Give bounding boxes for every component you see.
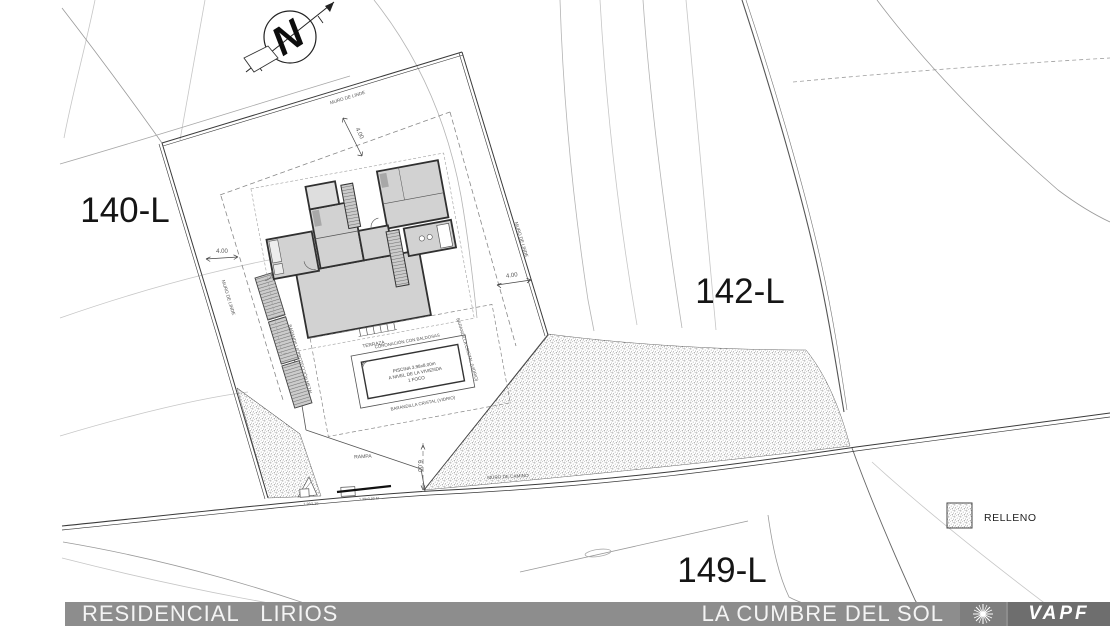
compass-flag: [244, 46, 278, 72]
road-dim-a: 1.26/1.39: [303, 502, 318, 507]
dim-right: 4.00: [506, 272, 519, 280]
parcel-label-149: 149-L: [677, 551, 767, 590]
project-name: RESIDENCIAL LIRIOS: [82, 602, 338, 626]
dim-ramp: 6.00: [416, 460, 422, 472]
dim-left: 4.00: [216, 249, 228, 255]
parcel-label-142: 142-L: [695, 272, 785, 311]
legend: RELLENO: [947, 503, 1037, 528]
relleno-band-right: [424, 334, 850, 490]
road-dim-b: 1.39x3.90 M: [359, 496, 379, 501]
location-name: LA CUMBRE DEL SOL: [702, 602, 944, 626]
site-plan-sheet: TERRAZA CORONACIÓN CON BALDOSAS PISCINA …: [0, 0, 1110, 626]
title-bar: RESIDENCIAL LIRIOS LA CUMBRE DEL SOL VAP…: [65, 602, 1110, 626]
room-bedroom-2: [377, 160, 449, 228]
muro-linde-top-label: MURO DE LINDE: [329, 90, 365, 105]
muro-linde-right-label: MURO DE LINDE: [514, 221, 529, 257]
parcel-label-140: 140-L: [80, 191, 170, 230]
rampa-label: RAMPA: [354, 454, 372, 461]
legend-relleno-label: RELLENO: [984, 512, 1037, 524]
sunburst-icon: [960, 602, 1006, 626]
legend-relleno-swatch: [947, 503, 972, 528]
vapf-logo: VAPF: [958, 602, 1110, 626]
room-bath-small: [305, 181, 339, 209]
muro-linde-left-label: MURO DE LINDE: [221, 279, 236, 315]
site-plan-drawing: TERRAZA CORONACIÓN CON BALDOSAS PISCINA …: [0, 0, 1110, 603]
vapf-wordmark: VAPF: [1028, 603, 1089, 625]
vapf-wordmark-box: VAPF: [1008, 602, 1110, 626]
dim-top: 4.00: [354, 127, 365, 141]
north-compass: N: [244, 2, 334, 72]
relleno-hatch-areas: [237, 334, 850, 498]
